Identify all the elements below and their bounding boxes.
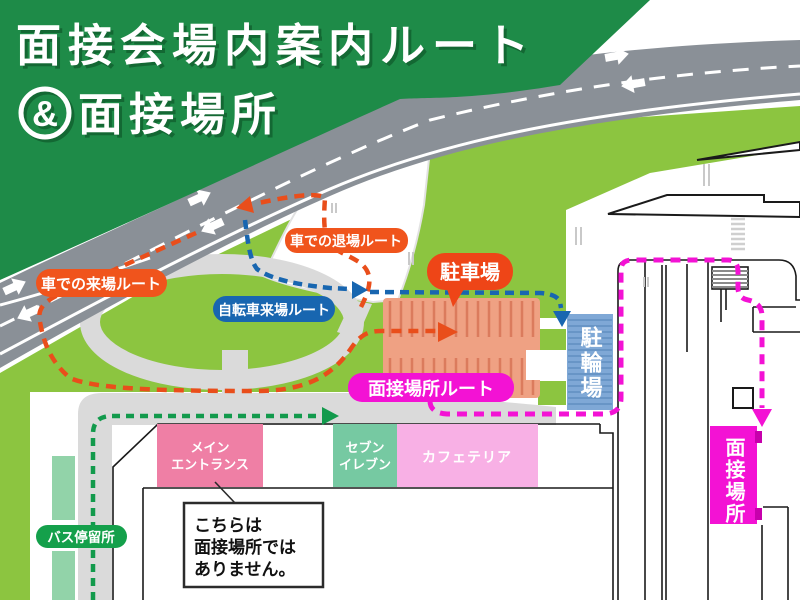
- bus-bay-strip: [52, 551, 75, 600]
- route-label-interview: 面接場所ルート: [348, 373, 514, 402]
- seven-eleven-facade: [333, 424, 397, 487]
- site-map-canvas: 面接会場内案内ルート & 面接場所 面接場所: [0, 0, 800, 600]
- main-entrance-facade: [157, 424, 263, 487]
- parking-label-text: 駐車場: [440, 260, 500, 284]
- cafeteria-label: カフェテリア: [422, 449, 512, 465]
- route-label-interview-text: 面接場所ルート: [368, 378, 494, 399]
- main-entrance-label-line2: エントランス: [171, 457, 249, 472]
- door-tab: [755, 508, 762, 520]
- callout-line3: ありません。: [194, 560, 296, 579]
- route-interview-arrowhead: [752, 409, 772, 427]
- ampersand: &: [32, 93, 58, 134]
- room-square: [733, 388, 753, 408]
- seven-eleven-label-line2: イレブン: [339, 457, 391, 472]
- callout-note: こちらは 面接場所では ありません。: [184, 482, 323, 587]
- factory-building-complex: [618, 260, 800, 600]
- route-label-bicycle: 自転車来場ルート: [213, 296, 335, 322]
- callout-line2: 面接場所では: [194, 537, 296, 557]
- route-label-car-arrival: 車での来場ルート: [36, 269, 167, 297]
- bus-bay-strip: [52, 456, 75, 520]
- bus-stop-label: バス停留所: [36, 525, 127, 548]
- page-title-line1: 面接会場内案内ルート: [16, 20, 536, 71]
- building-wedge: [608, 195, 800, 217]
- route-label-car-exit-text: 車での退場ルート: [290, 233, 402, 249]
- interview-place-label: 面接場所: [722, 437, 745, 525]
- door-tab: [755, 431, 762, 443]
- callout-line1: こちらは: [194, 516, 262, 535]
- crosswalk-icon: [731, 219, 745, 249]
- bicycle-parking-label: 駐輪場: [578, 325, 603, 401]
- interview-place-box: 面接場所: [710, 426, 762, 525]
- seven-eleven-label-line1: セブン: [345, 440, 384, 455]
- route-label-car-arrival-text: 車での来場ルート: [41, 275, 161, 293]
- main-entrance-label-line1: メイン: [190, 440, 229, 455]
- lawn-notch: [540, 350, 566, 381]
- route-label-bicycle-text: 自転車来場ルート: [218, 302, 330, 318]
- route-label-car-exit: 車での退場ルート: [285, 228, 408, 253]
- page-title-line2: 面接場所: [78, 89, 282, 140]
- bus-stop-label-text: バス停留所: [47, 529, 115, 545]
